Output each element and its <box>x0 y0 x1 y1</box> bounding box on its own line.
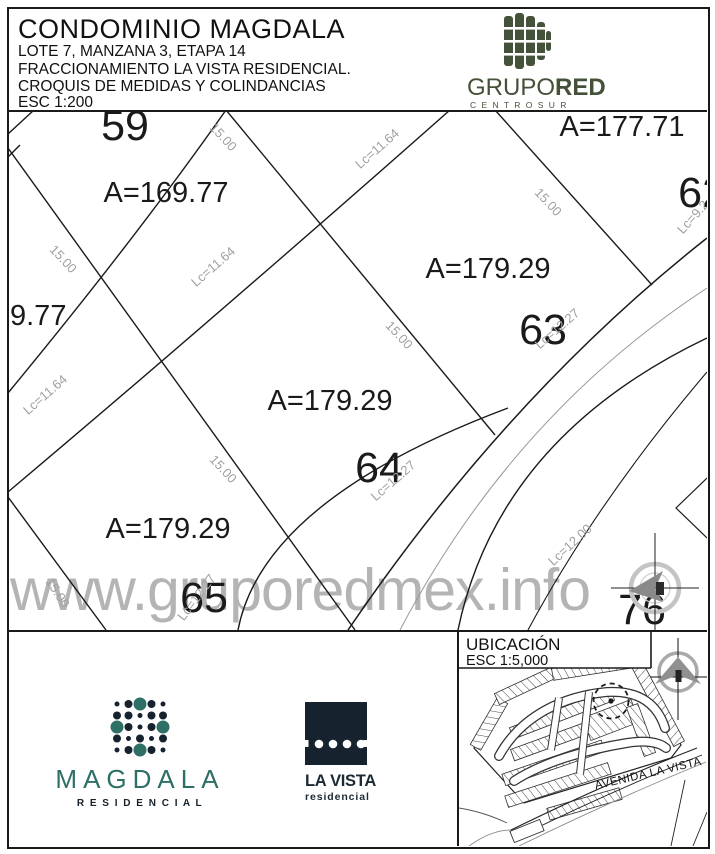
dimension-label: Lc=11.64 <box>188 244 238 290</box>
magdala-dot <box>113 712 121 720</box>
magdala-dot <box>113 735 121 743</box>
globe-icon <box>500 13 554 69</box>
dimension-label: Lc=11.64 <box>352 126 402 172</box>
ubicacion-scale: ESC 1:5,000 <box>466 653 548 669</box>
road <box>348 238 707 630</box>
magdala-dot <box>159 735 167 743</box>
magdala-dot <box>138 725 143 730</box>
lavista-logo: LA VISTA residencial <box>300 690 450 820</box>
dimension-label: 15.00 <box>383 318 416 352</box>
magdala-dot <box>157 721 170 734</box>
grupored-tagline: C E N T R O S U R <box>470 100 568 110</box>
magdala-wordmark: MAGDALA <box>55 764 224 794</box>
dimension-label: Lc=11.64 <box>20 372 70 418</box>
site-plan: A=169.77A=177.71A=179.29A=179.29A=179.29… <box>8 110 707 630</box>
area-label: 9.77 <box>10 300 66 332</box>
magdala-tagline: R E S I D E N C I A L <box>77 798 203 809</box>
location-map: AVENIDA LA VISTA <box>459 638 707 846</box>
lavista-wordmark: LA VISTA <box>305 772 376 790</box>
magdala-dot <box>149 736 154 741</box>
ubicacion-title: UBICACIÓN <box>466 635 560 654</box>
dimension-label: 15.00 <box>47 242 80 276</box>
lavista-tagline: residencial <box>305 791 370 803</box>
area-label: A=177.71 <box>560 111 685 143</box>
magdala-dot <box>138 713 143 718</box>
magdala-dot <box>125 700 133 708</box>
dimension-label: 15.00 <box>43 575 73 610</box>
dimension-label: 15.00 <box>207 120 240 154</box>
dimension-label: Lc=12.00 <box>545 521 595 569</box>
magdala-dot <box>115 748 120 753</box>
lot-number-label: 59 <box>101 110 149 150</box>
magdala-dot <box>136 735 144 743</box>
magdala-dot <box>126 736 131 741</box>
magdala-dot <box>161 702 166 707</box>
lot-location-dot <box>608 698 613 703</box>
magdala-dot <box>161 748 166 753</box>
area-label: A=179.29 <box>106 513 231 545</box>
grupored-wordmark-bold: RED <box>555 74 606 101</box>
magdala-dot <box>115 702 120 707</box>
magdala-dot <box>125 723 133 731</box>
magdala-dot <box>134 744 147 757</box>
magdala-dot <box>159 712 167 720</box>
magdala-dot <box>148 723 156 731</box>
area-label: A=179.29 <box>426 253 551 285</box>
magdala-dot <box>125 746 133 754</box>
lavista-icon <box>305 702 367 765</box>
magdala-dot <box>148 712 156 720</box>
grupored-wordmark-regular: GRUPORED <box>467 74 606 101</box>
fraccionamiento-line: FRACCIONAMIENTO LA VISTA RESIDENCIAL. <box>18 61 351 79</box>
document-title: CONDOMINIO MAGDALA <box>18 14 345 45</box>
croquis-document: www.gruporedmex.info CONDOMINIO MAGDALA … <box>0 0 715 854</box>
magdala-dot <box>134 698 147 711</box>
magdala-dot <box>148 700 156 708</box>
area-label: A=169.77 <box>104 177 229 209</box>
dimension-label: 15.00 <box>532 185 565 219</box>
magdala-logo: MAGDALA R E S I D E N C I A L <box>55 685 225 820</box>
magdala-dot <box>111 721 124 734</box>
magdala-dots-icon <box>111 698 170 757</box>
ubicacion-panel: AVENIDA LA VISTA UBICACIÓN ESC 1:5,000 <box>459 632 707 846</box>
dimension-label: 15.00 <box>207 452 240 486</box>
area-label: A=179.29 <box>268 385 393 417</box>
magdala-dot <box>148 746 156 754</box>
grupored-logo: GRUPORED C E N T R O S U R <box>460 8 707 110</box>
lot-line: LOTE 7, MANZANA 3, ETAPA 14 <box>18 43 246 61</box>
magdala-dot <box>125 712 133 720</box>
area-labels: A=169.77A=177.71A=179.29A=179.29A=179.29… <box>10 111 684 545</box>
